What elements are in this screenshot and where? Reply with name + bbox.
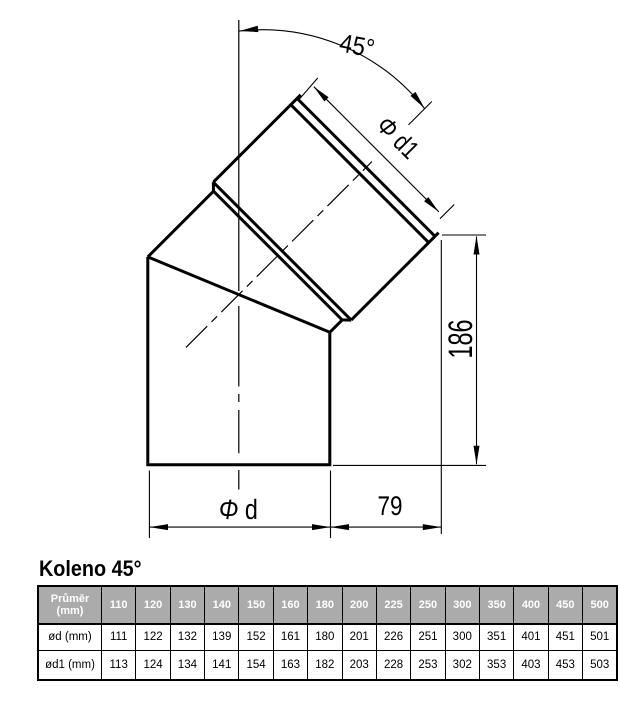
- svg-text:Φ d1: Φ d1: [371, 110, 425, 164]
- svg-text:186: 186: [442, 320, 480, 359]
- svg-text:79: 79: [378, 491, 403, 521]
- svg-text:Φ d: Φ d: [219, 494, 258, 525]
- svg-text:45°: 45°: [337, 27, 377, 63]
